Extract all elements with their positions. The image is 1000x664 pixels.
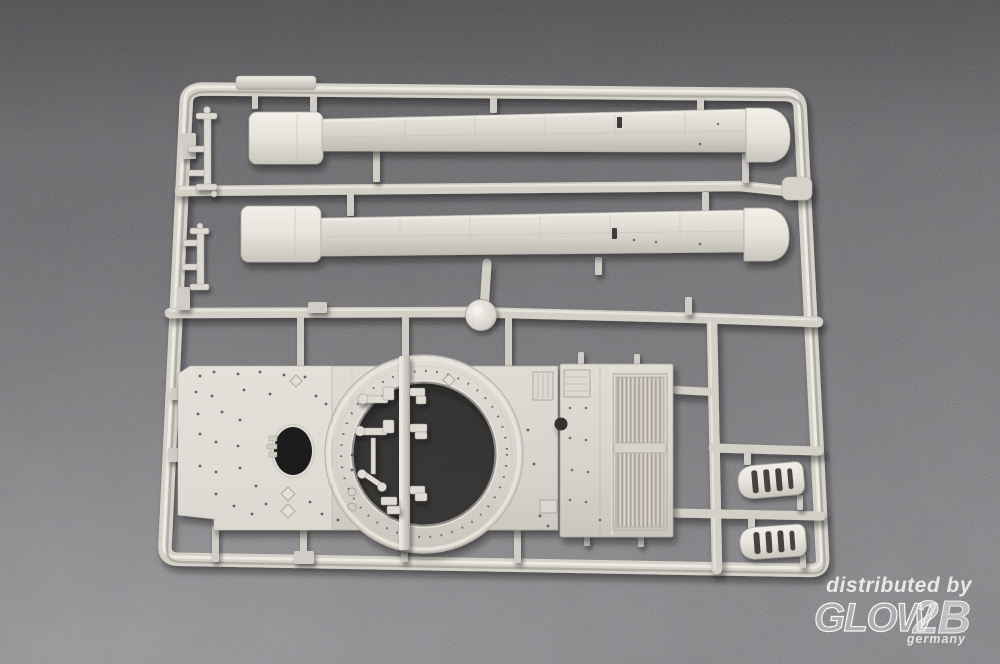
exhaust-grille-part-1 — [737, 461, 806, 500]
sprue-gate — [252, 95, 258, 109]
sprue-gate — [373, 149, 380, 182]
sprue-gate — [800, 554, 806, 568]
upper-fender-end-cap — [746, 108, 790, 162]
sprue-gate — [347, 192, 354, 216]
sprue-gate — [797, 495, 803, 510]
runner-link-lower-grille — [676, 513, 821, 516]
sprue-gate — [685, 297, 692, 315]
runner-link-deck — [676, 390, 713, 392]
sprue-gate — [514, 528, 521, 563]
sprue-gate — [294, 551, 314, 564]
watermark-country: germany — [906, 632, 966, 646]
sprue-gate — [177, 287, 190, 310]
sprue-gate — [505, 317, 512, 367]
sprue-photo-canvas: distributed by GLOW 2B germany — [0, 0, 1000, 664]
sprue-gate — [212, 526, 219, 562]
sprue-gate — [308, 302, 327, 313]
engine-grille-louvers-lower — [616, 453, 664, 527]
sprue-gate — [595, 257, 602, 275]
runner-elbow-block — [782, 177, 812, 200]
sprue-gate — [702, 192, 709, 212]
fender-slot — [612, 228, 617, 239]
engine-deck-part — [555, 364, 674, 537]
sprue-gate — [490, 97, 497, 113]
sprue-gate — [744, 451, 751, 465]
deck-round-notch — [555, 418, 568, 431]
sprue-gate — [402, 317, 409, 358]
watermark: distributed by GLOW 2B germany — [814, 574, 973, 646]
exhaust-grille-part-2 — [739, 524, 807, 561]
turret-ring-runner — [399, 356, 410, 550]
lower-fender-end-cap — [744, 208, 789, 261]
fender-slot — [617, 117, 622, 128]
sprue-gate — [310, 96, 317, 112]
sprue-photo: distributed by GLOW 2B germany — [0, 0, 1000, 664]
engine-grille-louvers-upper — [616, 377, 664, 443]
engine-grille-divider — [614, 443, 666, 453]
injection-gate-node — [466, 300, 497, 331]
top-frame-label-plate — [236, 76, 316, 90]
deck-hatch — [564, 370, 590, 397]
sprue-gate — [297, 317, 304, 367]
runner-link-upper-grille — [713, 448, 819, 451]
